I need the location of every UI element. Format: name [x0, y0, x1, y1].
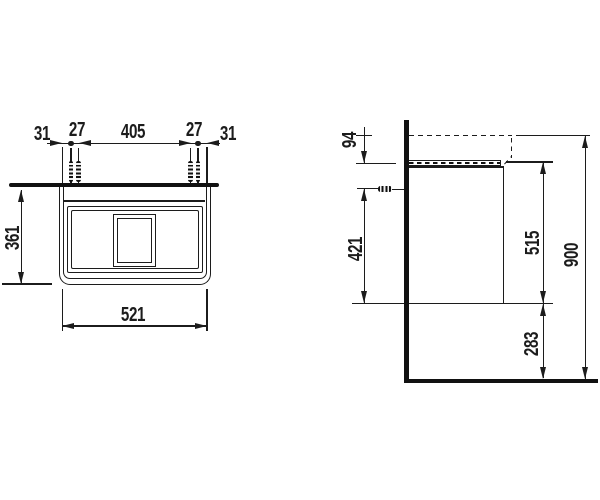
cabinet-top-rail-line [64, 200, 205, 201]
arrowhead [540, 304, 546, 316]
dim-label-405: 405 [117, 122, 150, 142]
dim-label-31-right: 31 [211, 124, 244, 144]
arrowhead [540, 291, 546, 303]
cabinet-bottom-line [352, 303, 553, 304]
dim-dot [68, 141, 73, 146]
dim-label-27-left: 27 [60, 120, 93, 140]
dim-line [585, 136, 586, 379]
dim-dot [195, 141, 200, 146]
arrowhead [540, 162, 546, 174]
arrowhead [361, 291, 367, 303]
technical-drawing-canvas: 31 27 405 27 31 361 521 [0, 0, 600, 500]
wall-anchor-icon [378, 186, 392, 192]
cabinet-front-line [503, 166, 504, 303]
floor-line [404, 379, 598, 384]
bolt-thread-icon [69, 161, 74, 182]
extension-line [516, 135, 590, 136]
bolt-thread-icon [188, 161, 193, 182]
arrowhead [195, 323, 207, 329]
dim-label-94: 94 [340, 113, 360, 166]
dim-label-421: 421 [346, 222, 366, 275]
extension-line [2, 283, 52, 284]
dim-label-521: 521 [117, 305, 150, 325]
dim-label-515: 515 [523, 216, 543, 269]
wall-line-plan [9, 183, 219, 187]
arrowhead [582, 136, 588, 148]
wall-anchor-shaft [391, 189, 404, 191]
wall-line-side [404, 120, 409, 383]
siphon-cutout-inner [117, 218, 152, 263]
arrowhead [18, 190, 24, 202]
arrowhead [361, 151, 367, 163]
arrowhead [18, 272, 24, 284]
arrowhead [582, 367, 588, 379]
countertop-edge [409, 160, 502, 166]
dim-label-900: 900 [562, 228, 582, 281]
extension-line [206, 147, 207, 183]
cabinet-top-line [409, 166, 505, 167]
arrowhead [361, 189, 367, 201]
washbasin-dashed-outline [409, 135, 513, 136]
arrowhead [62, 323, 74, 329]
bolt-thread-icon [196, 161, 201, 182]
washbasin-dashed-outline [511, 138, 512, 158]
dim-label-361: 361 [3, 212, 23, 265]
bolt-thread-icon [76, 161, 81, 182]
dim-label-27-right: 27 [177, 120, 210, 140]
dim-label-31-left: 31 [25, 124, 58, 144]
dim-label-283: 283 [522, 317, 542, 370]
countertop-dash-pattern [409, 162, 501, 164]
extension-line [62, 147, 63, 183]
